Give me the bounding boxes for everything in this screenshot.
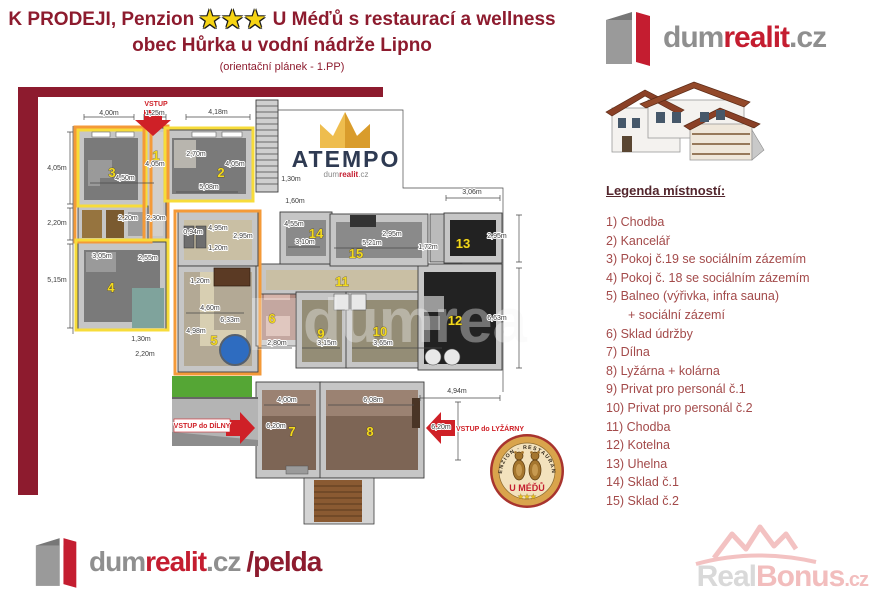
room-number: 9	[317, 326, 324, 341]
stairs-top	[256, 100, 278, 192]
entrance-label: VSTUP do LYŽÁRNY	[456, 424, 524, 433]
agent-name: /pelda	[246, 546, 321, 577]
dumrealit-cube-icon	[34, 534, 80, 590]
dimension-label: 2,95m	[233, 233, 253, 240]
dimension-label: 5,15m	[47, 277, 67, 284]
building-render	[606, 82, 764, 160]
three-stars-icon: ★★★	[200, 6, 268, 32]
legend-item: 9) Privat pro personál č.1	[606, 380, 872, 399]
room-number: 5	[210, 333, 217, 348]
dimension-label: 2,70m	[186, 151, 206, 158]
dimension-label: 1,30m	[131, 336, 151, 343]
dimension-label: 1,72m	[418, 244, 438, 251]
badge-name: U MÉĎŮ	[509, 482, 545, 493]
title-suffix: U Méďů s restaurací a wellness	[273, 9, 556, 30]
legend-item: 3) Pokoj č.19 se sociálním zázemím	[606, 250, 872, 269]
dimension-label: 0,94m	[183, 229, 203, 236]
dimension-label: 4,55m	[284, 221, 304, 228]
entrance-label: VSTUP	[144, 101, 168, 108]
legend-item: 6) Sklad údržby	[606, 325, 872, 344]
room-number: 15	[349, 246, 363, 261]
dimension-label: 5,21m	[362, 240, 382, 247]
room-number: 10	[373, 324, 387, 339]
entrance-label: VSTUP do DÍLNY	[174, 421, 231, 430]
room-number: 3	[108, 165, 115, 180]
room-number: 12	[448, 313, 462, 328]
legend-item: 8) Lyžárna + kolárna	[606, 362, 872, 381]
dimension-label: 4,05m	[47, 165, 67, 172]
dimension-label: 4,60m	[200, 305, 220, 312]
dimension-label: 4,95m	[208, 225, 228, 232]
legend-item: 12) Kotelna	[606, 436, 872, 455]
legend-item: 10) Privat pro personál č.2	[606, 399, 872, 418]
atempo-watermark: ATEMPO dumrealit.cz	[292, 112, 401, 179]
dimension-label: 3,65m	[373, 340, 393, 347]
room-number: 1	[152, 148, 159, 163]
room-number: 13	[456, 236, 470, 251]
room-number: 6	[268, 311, 275, 326]
dimension-label: 4,00m	[99, 110, 119, 117]
dimension-label: 3,05m	[92, 253, 112, 260]
dumrealit-logo-top: dumrealit.cz	[604, 8, 826, 68]
atempo-name: ATEMPO	[292, 146, 401, 172]
legend-item: 2) Kancelář	[606, 232, 872, 251]
dimension-label: 2,95m	[382, 231, 402, 238]
room-number: 8	[366, 424, 373, 439]
room-number: 14	[309, 226, 324, 241]
dimension-label: 3,06m	[462, 189, 482, 196]
dimension-label: 2,30m	[146, 215, 166, 222]
dimension-label: 2,55m	[138, 255, 158, 262]
dimension-label: 2,20m	[118, 215, 138, 222]
listing-subtitle: obec Hůrka u vodní nádrže Lipno	[4, 33, 560, 58]
dimension-label: 4,00m	[277, 397, 297, 404]
dimension-label: 2,95m	[487, 233, 507, 240]
dimension-label: 4,94m	[447, 388, 467, 395]
dimension-label: 5,08m	[199, 184, 219, 191]
legend-item: 11) Chodba	[606, 418, 872, 437]
room-number: 7	[288, 424, 295, 439]
stairs-bottom	[304, 478, 374, 524]
realbonus-wordmark: RealBonus.cz	[697, 560, 868, 594]
legend-heading: Legenda místností:	[606, 183, 872, 198]
dimension-label: 1,60m	[285, 198, 305, 205]
legend-item: 15) Sklad č.2	[606, 492, 872, 511]
title-prefix: K PRODEJI, Penzion	[8, 9, 194, 30]
legend-item: 5) Balneo (výřivka, infra sauna)	[606, 287, 872, 306]
dumrealit-wordmark: dumrealit.cz	[663, 21, 826, 55]
room-number: 11	[335, 274, 349, 289]
dimension-label: 6,08m	[363, 397, 383, 404]
dimension-label: 3,15m	[317, 340, 337, 347]
dimension-label: 4,98m	[186, 328, 206, 335]
dumrealit-cube-icon	[604, 8, 654, 68]
dimension-label: 4,50m	[115, 175, 135, 182]
dimension-label: 4,18m	[208, 109, 228, 116]
atempo-sub: dumrealit.cz	[324, 170, 369, 179]
plan-note: (orientační plánek - 1.PP)	[4, 60, 560, 75]
badge-stars: ★★★	[518, 493, 537, 501]
room-number: 4	[107, 280, 115, 295]
dimension-label: 6,33m	[220, 317, 240, 324]
dimension-label: 6,20m	[431, 424, 451, 431]
legend-item: 13) Uhelna	[606, 455, 872, 474]
dimension-label: 6,63m	[487, 315, 507, 322]
dimension-label: 1,25m	[145, 110, 165, 117]
room-legend: Legenda místností: 1) Chodba 2) Kancelář…	[606, 183, 872, 511]
dimension-label: 1,20m	[208, 245, 228, 252]
dimension-label: 2,80m	[267, 340, 287, 347]
dimension-label: 6,20m	[266, 423, 286, 430]
dimension-label: 2,20m	[47, 220, 67, 227]
legend-item: 4) Pokoj č. 18 se sociálním zázemím	[606, 269, 872, 288]
dumrealit-logo-bottom: dumrealit.cz/pelda	[34, 534, 321, 590]
legend-item: 1) Chodba	[606, 213, 872, 232]
legend-item: 14) Sklad č.1	[606, 473, 872, 492]
dimension-label: 2,20m	[135, 351, 155, 358]
room-number: 2	[217, 165, 224, 180]
listing-title-block: K PRODEJI, Penzion ★★★ U Méďů s restaura…	[4, 6, 560, 75]
dimension-label: 4,05m	[225, 161, 245, 168]
dumrealit-pelda-wordmark: dumrealit.cz/pelda	[89, 546, 321, 578]
realbonus-watermark: RealBonus.cz	[636, 522, 872, 596]
page-title: K PRODEJI, Penzion ★★★ U Méďů s restaura…	[4, 6, 560, 33]
dimension-label: 1,20m	[190, 278, 210, 285]
dimension-label: 1,30m	[281, 176, 301, 183]
legend-item: 7) Dílna	[606, 343, 872, 362]
legend-item: + sociální zázemí	[606, 306, 872, 325]
